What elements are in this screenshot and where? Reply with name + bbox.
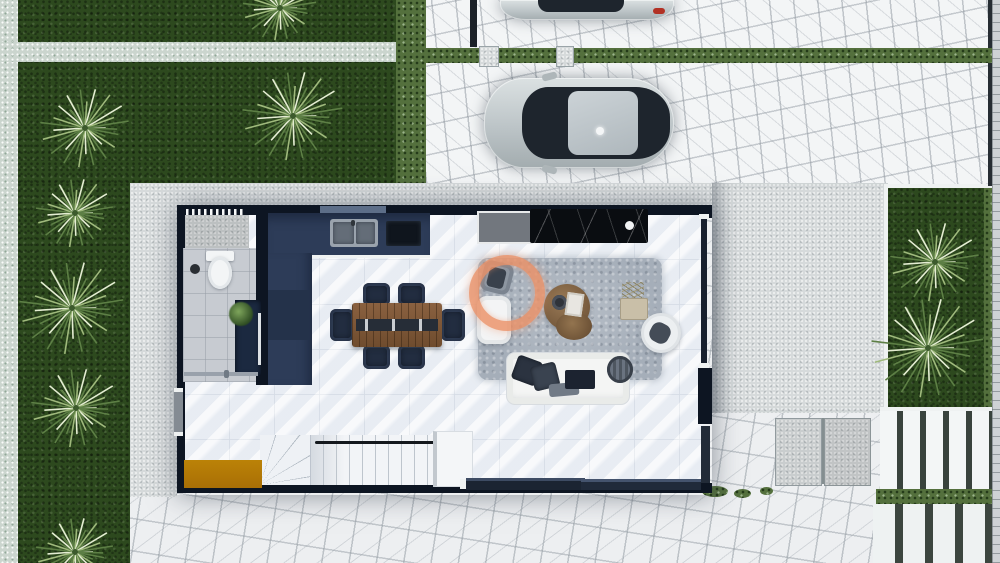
door-right — [701, 426, 710, 483]
parked-car-top — [500, 0, 674, 20]
bathroom-glass-door — [184, 372, 258, 376]
aerial-floorplan-render — [0, 0, 1000, 563]
cooktop — [386, 221, 421, 246]
vanity-plant — [229, 302, 253, 326]
toilet-bowl — [208, 257, 232, 289]
side-tray — [620, 298, 648, 320]
pouf — [607, 356, 633, 383]
glass-wall-cap-top — [699, 214, 709, 219]
swivel-chair — [641, 313, 681, 353]
yucca-plant — [35, 512, 115, 563]
yucca-plant — [242, 0, 318, 46]
swivel-cushion — [646, 319, 673, 346]
yucca-plant — [18, 254, 126, 362]
dining-chair — [330, 309, 354, 341]
entry-pad — [185, 215, 249, 250]
coffee-table-lobe — [556, 312, 592, 340]
sofa-tray — [565, 370, 595, 389]
glass-wall-right — [701, 218, 707, 368]
car-windshield — [538, 0, 624, 12]
yucca-plant — [30, 362, 122, 454]
tour-hotspot[interactable] — [469, 255, 545, 331]
sliding-door-panel — [466, 478, 585, 490]
stair-handrail — [315, 441, 435, 444]
house — [177, 205, 712, 495]
dining-chair — [398, 345, 425, 369]
console-bowl — [625, 221, 634, 230]
parked-sedan — [484, 78, 674, 168]
sliding-door-panel — [581, 479, 701, 490]
yucca-plant — [241, 64, 345, 168]
bathroom-door-handle — [224, 370, 229, 378]
tv-panel — [477, 211, 533, 244]
wall-right-pier — [698, 368, 712, 424]
car-taillight — [653, 8, 665, 14]
sink-basin-right — [356, 222, 375, 244]
vanity-mirror-strip — [258, 313, 261, 365]
table-book — [564, 292, 584, 317]
entry-mat — [184, 460, 262, 488]
yucca-plant — [35, 173, 115, 253]
dining-chair — [363, 345, 390, 369]
kitchen-cabinet-block — [268, 290, 309, 340]
dining-chair — [441, 309, 465, 341]
yucca-plant — [870, 290, 986, 406]
sink-faucet — [351, 220, 355, 226]
stair-winder — [260, 435, 310, 485]
yucca-plant — [39, 82, 131, 174]
table-runner — [356, 319, 438, 331]
bathroom-bin — [190, 264, 200, 274]
car-roof-panel — [568, 91, 638, 155]
car-roof-highlight — [596, 127, 604, 135]
toilet — [206, 251, 234, 293]
kitchen-sink — [330, 219, 378, 247]
window-left — [174, 388, 183, 436]
